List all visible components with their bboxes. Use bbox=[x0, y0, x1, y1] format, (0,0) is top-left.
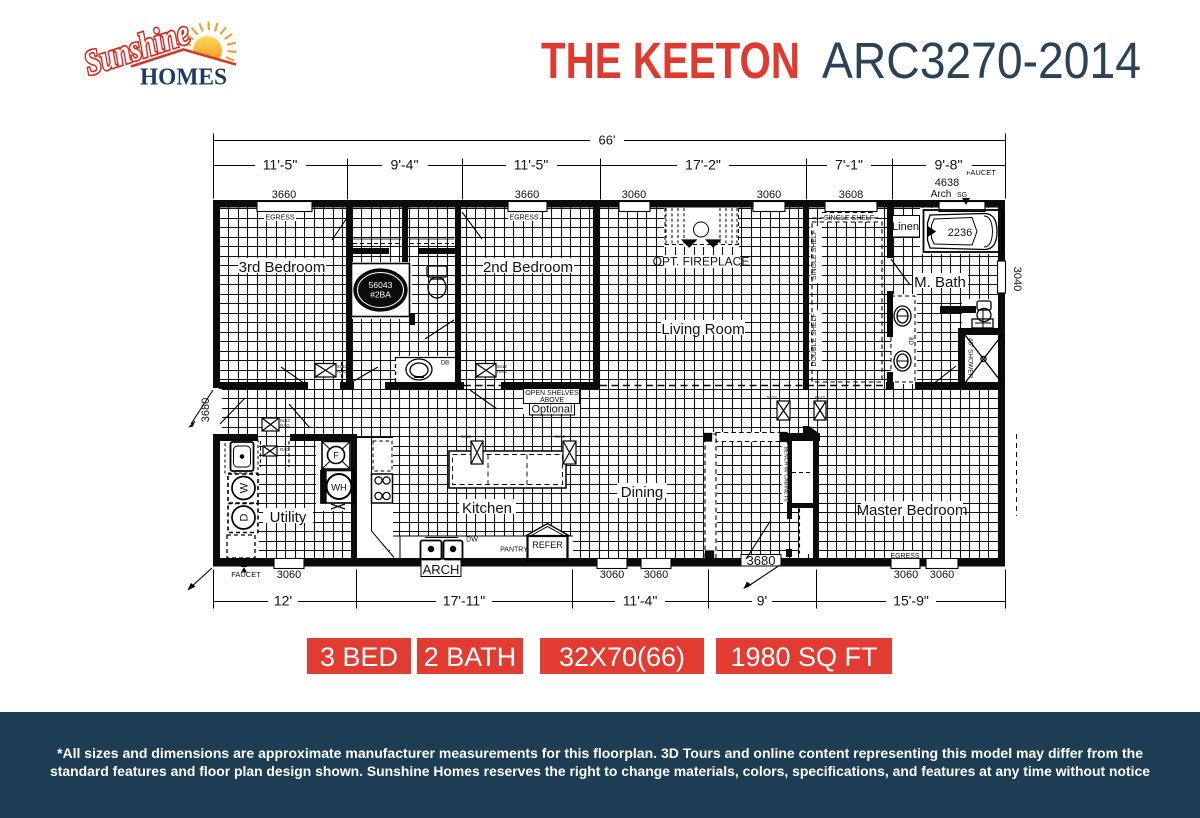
svg-text:HOMES: HOMES bbox=[140, 65, 227, 91]
svg-text:Living Room: Living Room bbox=[661, 321, 744, 338]
svg-text:3680: 3680 bbox=[747, 553, 776, 568]
svg-text:12': 12' bbox=[274, 593, 292, 609]
svg-text:11'-5": 11'-5" bbox=[263, 157, 298, 173]
svg-text:SINGLE SHELF: SINGLE SHELF bbox=[811, 230, 818, 280]
svg-text:Linen: Linen bbox=[892, 221, 919, 233]
svg-text:3680: 3680 bbox=[200, 398, 212, 422]
svg-text:DOUBLE SHELF: DOUBLE SHELF bbox=[811, 313, 818, 366]
svg-text:3608: 3608 bbox=[839, 189, 863, 201]
svg-text:EGRESS: EGRESS bbox=[890, 553, 920, 560]
svg-text:3060: 3060 bbox=[277, 569, 301, 581]
svg-text:*All sizes and dimensions are: *All sizes and dimensions are approximat… bbox=[57, 745, 1143, 761]
svg-text:DB: DB bbox=[441, 361, 449, 367]
svg-text:4638: 4638 bbox=[935, 177, 959, 189]
svg-text:WH: WH bbox=[331, 483, 347, 494]
svg-text:3 BED: 3 BED bbox=[320, 642, 398, 672]
svg-text:5x12: 5x12 bbox=[461, 434, 471, 439]
svg-text:REFER: REFER bbox=[532, 540, 563, 550]
svg-text:W: W bbox=[239, 482, 251, 493]
svg-text:OPEN SHELVES: OPEN SHELVES bbox=[525, 390, 579, 397]
svg-text:66': 66' bbox=[599, 133, 616, 148]
svg-text:3660: 3660 bbox=[515, 189, 539, 201]
svg-text:7'-1": 7'-1" bbox=[835, 157, 863, 173]
svg-text:9'-4": 9'-4" bbox=[391, 157, 419, 173]
svg-text:BENCH w/ CABINETS: BENCH w/ CABINETS bbox=[783, 446, 789, 502]
svg-text:EGRESS: EGRESS bbox=[265, 215, 295, 222]
svg-text:SINGLE SHELF: SINGLE SHELF bbox=[824, 215, 874, 222]
svg-text:Utility: Utility bbox=[270, 509, 307, 526]
svg-text:8x12: 8x12 bbox=[555, 434, 565, 439]
svg-text:#2BA: #2BA bbox=[370, 290, 391, 300]
svg-text:standard features and floor pl: standard features and floor plan design … bbox=[50, 763, 1150, 779]
svg-text:1980 SQ FT: 1980 SQ FT bbox=[730, 642, 877, 672]
svg-text:3060: 3060 bbox=[757, 189, 781, 201]
svg-text:Dining: Dining bbox=[621, 484, 664, 501]
svg-text:46" SHOWER: 46" SHOWER bbox=[967, 338, 974, 379]
svg-text:5x12: 5x12 bbox=[767, 395, 777, 400]
svg-text:ABOVE: ABOVE bbox=[540, 397, 564, 404]
svg-text:2 BATH: 2 BATH bbox=[424, 642, 517, 672]
svg-text:ARC3270-2014: ARC3270-2014 bbox=[822, 32, 1141, 89]
svg-text:3060: 3060 bbox=[622, 189, 646, 201]
svg-text:32X70(66): 32X70(66) bbox=[559, 642, 685, 672]
svg-text:2nd Bedroom: 2nd Bedroom bbox=[483, 259, 573, 276]
svg-text:9'-8": 9'-8" bbox=[935, 157, 963, 173]
svg-text:15'-9": 15'-9" bbox=[893, 593, 929, 609]
svg-text:ARCH: ARCH bbox=[423, 562, 460, 577]
svg-text:3060: 3060 bbox=[600, 569, 624, 581]
svg-text:RAG: RAG bbox=[497, 369, 507, 374]
svg-text:17'-2": 17'-2" bbox=[685, 157, 721, 173]
svg-text:THE KEETON: THE KEETON bbox=[541, 32, 800, 89]
svg-text:56043: 56043 bbox=[369, 280, 393, 290]
svg-text:3660: 3660 bbox=[272, 189, 296, 201]
svg-text:Arch: Arch bbox=[931, 189, 952, 200]
svg-text:EGRESS: EGRESS bbox=[509, 215, 539, 222]
svg-text:Optional: Optional bbox=[532, 404, 573, 416]
svg-text:PANTRY: PANTRY bbox=[500, 547, 528, 554]
svg-text:M. Bath: M. Bath bbox=[914, 274, 966, 291]
svg-text:2236: 2236 bbox=[948, 227, 972, 239]
svg-text:SG: SG bbox=[957, 192, 967, 199]
svg-text:RAG: RAG bbox=[280, 423, 290, 428]
svg-text:RAG: RAG bbox=[337, 369, 347, 374]
svg-text:D: D bbox=[239, 513, 251, 521]
svg-text:3rd Bedroom: 3rd Bedroom bbox=[239, 259, 326, 276]
svg-text:F: F bbox=[333, 451, 339, 461]
svg-text:8D: 8D bbox=[907, 337, 913, 345]
svg-text:Master Bedroom: Master Bedroom bbox=[857, 502, 968, 519]
svg-text:17'-11": 17'-11" bbox=[443, 593, 485, 609]
svg-text:DW: DW bbox=[466, 537, 478, 544]
svg-text:RAG: RAG bbox=[280, 447, 290, 452]
svg-text:Kitchen: Kitchen bbox=[462, 500, 512, 517]
svg-text:3060: 3060 bbox=[644, 569, 668, 581]
svg-text:8x12: 8x12 bbox=[815, 395, 825, 400]
svg-text:3060: 3060 bbox=[930, 569, 954, 581]
svg-text:3040: 3040 bbox=[1011, 267, 1023, 291]
svg-text:11'-4": 11'-4" bbox=[623, 593, 658, 609]
svg-text:3060: 3060 bbox=[894, 569, 918, 581]
svg-text:OPT. FIREPLACE: OPT. FIREPLACE bbox=[653, 255, 750, 269]
svg-text:9': 9' bbox=[757, 593, 767, 609]
svg-text:11'-5": 11'-5" bbox=[514, 157, 549, 173]
